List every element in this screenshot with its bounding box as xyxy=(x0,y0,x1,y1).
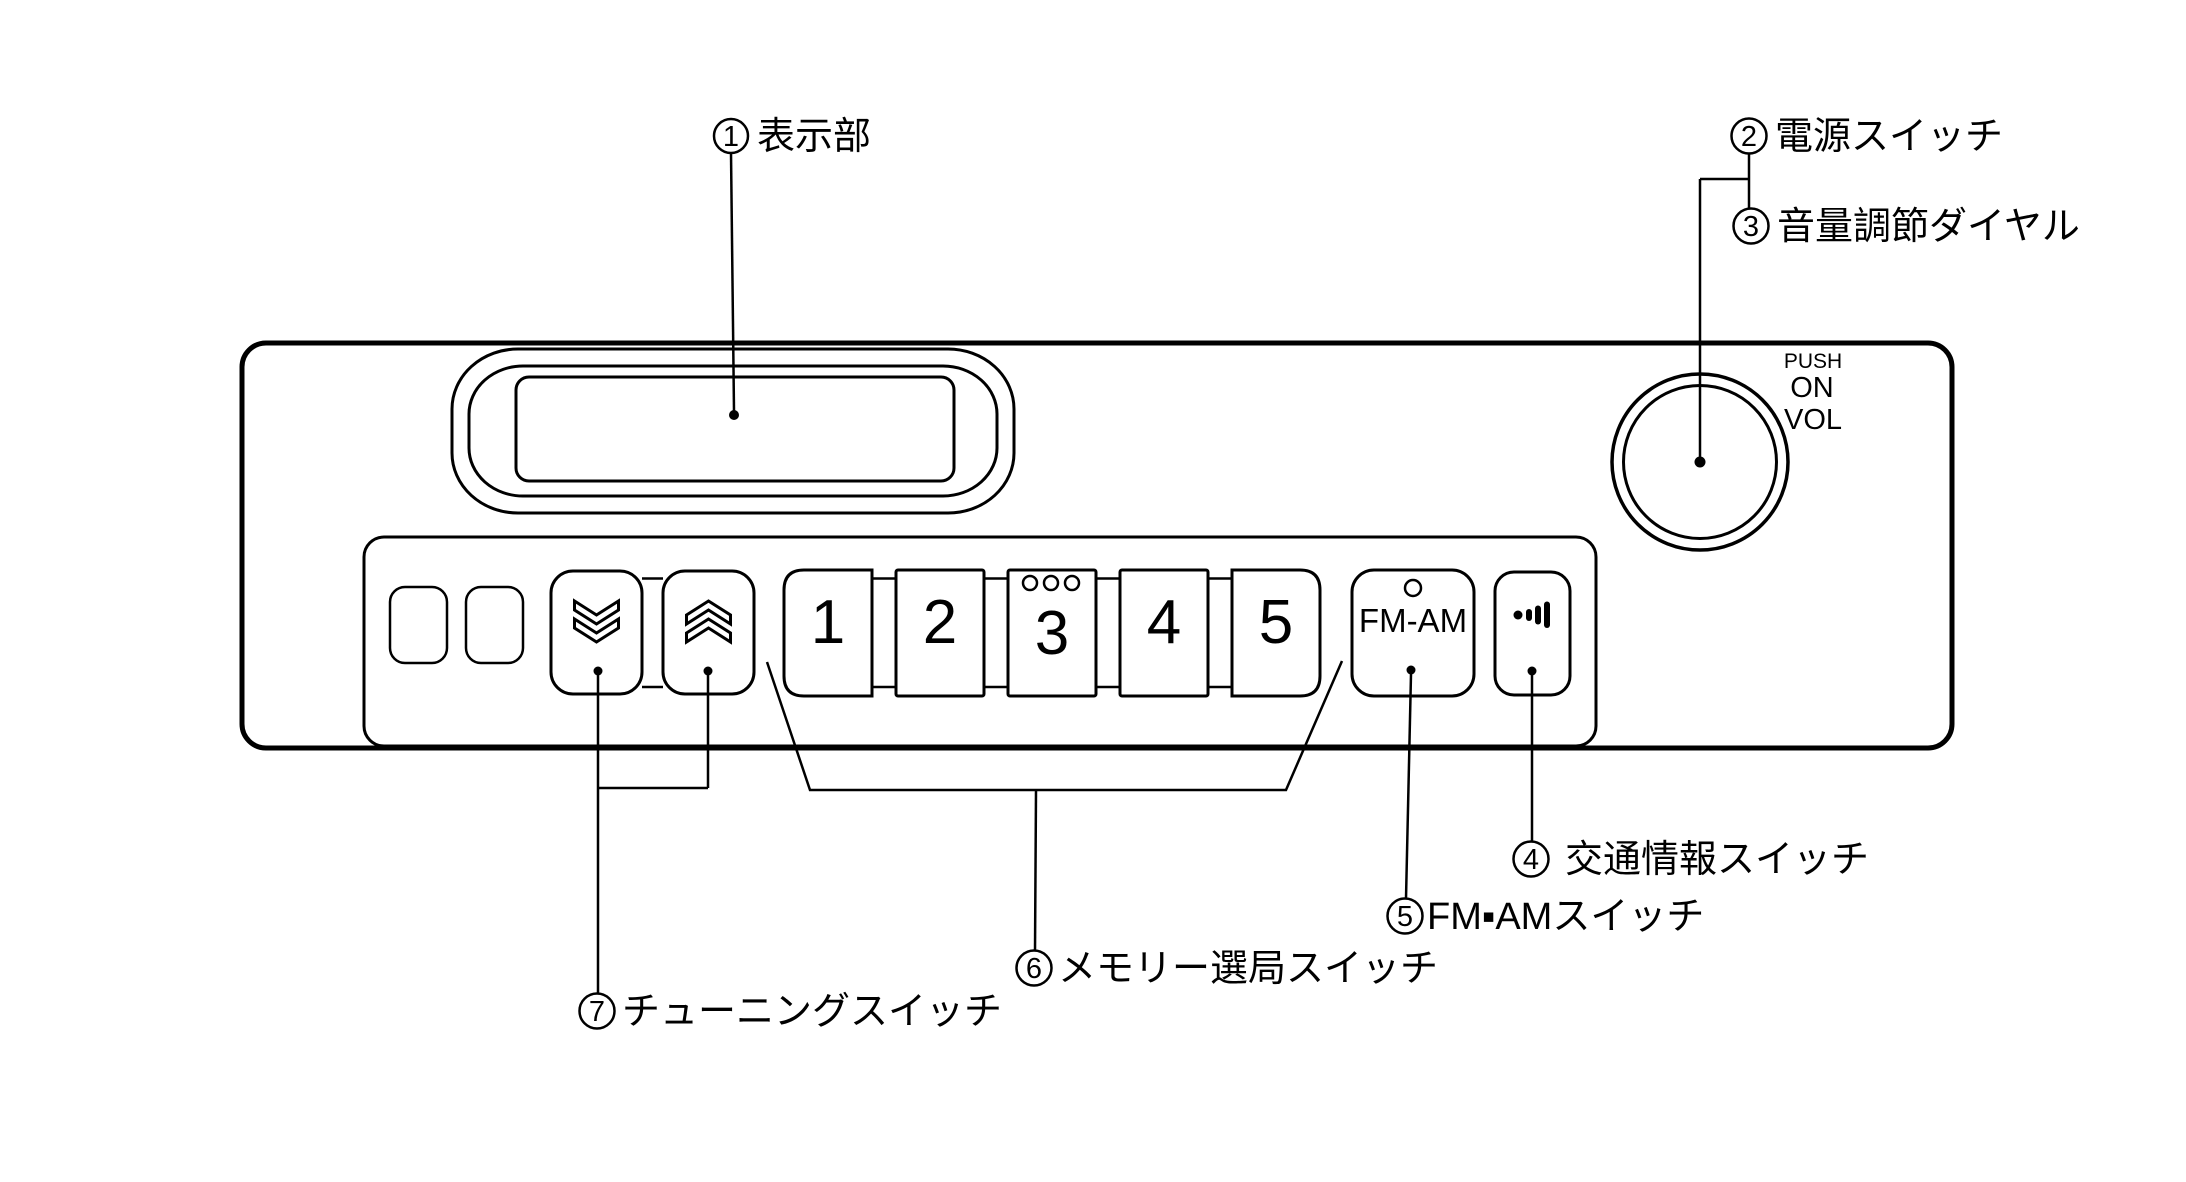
radio-panel-diagram: 1 2 3 4 5 FM-AM PUSH ON VOL 1 表示部 xyxy=(0,0,2186,1182)
fm-am-indicator-icon xyxy=(1405,580,1421,596)
preset-2-label: 2 xyxy=(923,588,957,657)
leader-line xyxy=(1035,790,1036,951)
callout-2-number: 2 xyxy=(1741,121,1757,153)
callout-5-number: 5 xyxy=(1397,901,1413,933)
knob-marking-push: PUSH xyxy=(1784,350,1842,373)
preset-4-label: 4 xyxy=(1147,588,1181,657)
preset-1-label: 1 xyxy=(811,588,845,657)
callout-4-label: 交通情報スイッチ xyxy=(1565,839,1869,881)
preset-3-dots-icon xyxy=(1023,576,1079,590)
leader-dot xyxy=(1695,457,1706,468)
callout-4-number: 4 xyxy=(1523,844,1539,876)
callout-1-label: 表示部 xyxy=(757,116,871,158)
callout-7-label: チューニングスイッチ xyxy=(622,991,1002,1033)
blank-button-1[interactable] xyxy=(390,587,447,663)
knob-marking-vol: VOL xyxy=(1784,404,1842,436)
leader-dot xyxy=(729,410,739,420)
callout-7-number: 7 xyxy=(589,996,605,1028)
callout-3-number: 3 xyxy=(1743,211,1759,243)
callout-3-label: 音量調節ダイヤル xyxy=(1777,206,2080,248)
callout-6-number: 6 xyxy=(1026,953,1042,985)
preset-3-label: 3 xyxy=(1035,599,1069,668)
diagram-canvas: 1 2 3 4 5 FM-AM PUSH ON VOL 1 表示部 xyxy=(0,0,2186,1182)
blank-button-2[interactable] xyxy=(466,587,523,663)
knob-marking-on: ON xyxy=(1790,372,1834,404)
preset-5-label: 5 xyxy=(1259,588,1293,657)
callout-6-label: メモリー選局スイッチ xyxy=(1058,948,1438,990)
fm-am-button-label: FM-AM xyxy=(1359,602,1467,639)
leader-dot xyxy=(1407,666,1416,675)
callout-2-label: 電源スイッチ xyxy=(1775,116,2003,158)
callout-1-number: 1 xyxy=(723,121,739,153)
callout-5-label: FM▪AMスイッチ xyxy=(1427,896,1704,938)
